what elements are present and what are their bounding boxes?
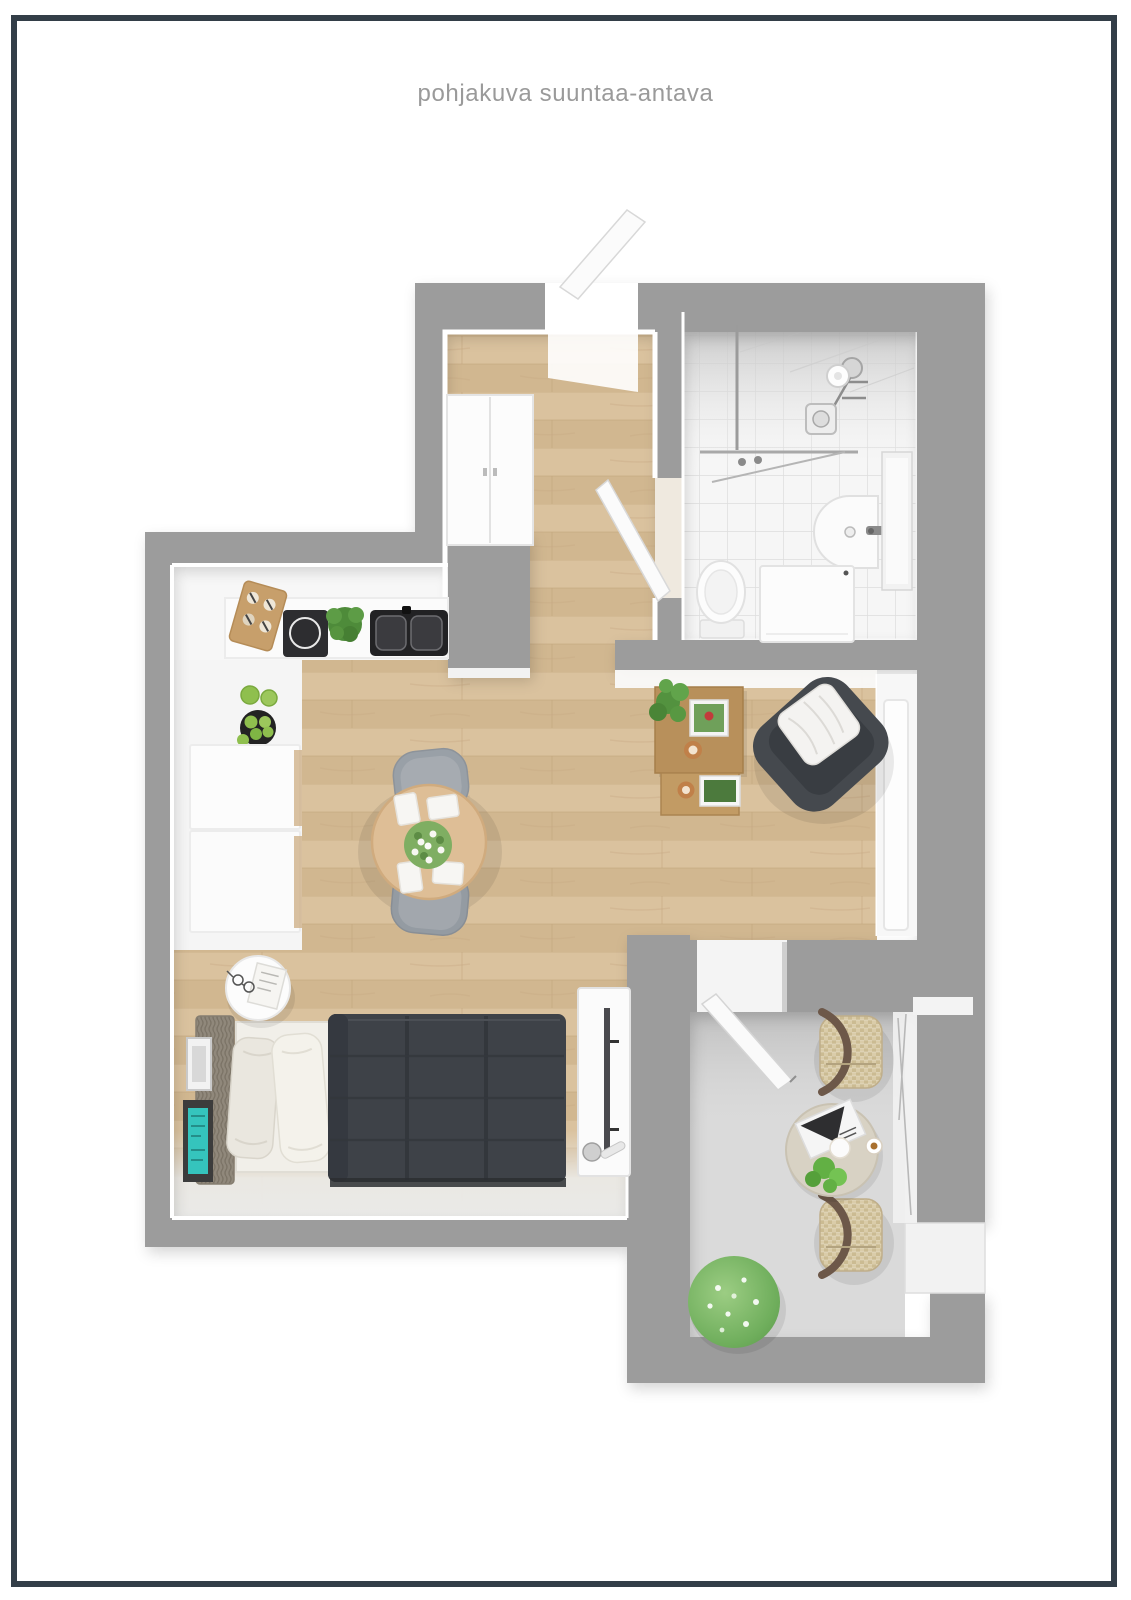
washbasin [814, 496, 884, 568]
tv [604, 1008, 610, 1150]
balcony-chair-bottom [820, 1195, 882, 1275]
floor-plan-sheet: pohjakuva suuntaa-antava [0, 0, 1131, 1600]
bed [196, 1014, 566, 1187]
balcony-parapet-top [913, 997, 973, 1015]
front-door-opening [545, 283, 638, 332]
toilet [697, 561, 745, 638]
magazine [690, 700, 728, 736]
wall-outlet [806, 404, 836, 434]
refrigerator-cabinets [190, 745, 302, 932]
speaker [583, 1143, 601, 1161]
wall-art [183, 1038, 213, 1182]
cooktop [283, 610, 328, 657]
balcony-chair-top [820, 1012, 882, 1092]
kitchen-sink [370, 606, 448, 656]
balcony-parapet [905, 1223, 985, 1293]
washing-machine [760, 566, 854, 642]
flower-bouquet [404, 821, 452, 869]
duvet [328, 1014, 566, 1187]
tv-stand [578, 988, 630, 1176]
window [877, 674, 917, 936]
book [700, 776, 740, 806]
pillow-2 [271, 1032, 332, 1164]
window-sill [884, 700, 908, 930]
floor-plan [0, 0, 1131, 1600]
coffee-tables [649, 679, 747, 815]
dish [830, 1138, 850, 1158]
